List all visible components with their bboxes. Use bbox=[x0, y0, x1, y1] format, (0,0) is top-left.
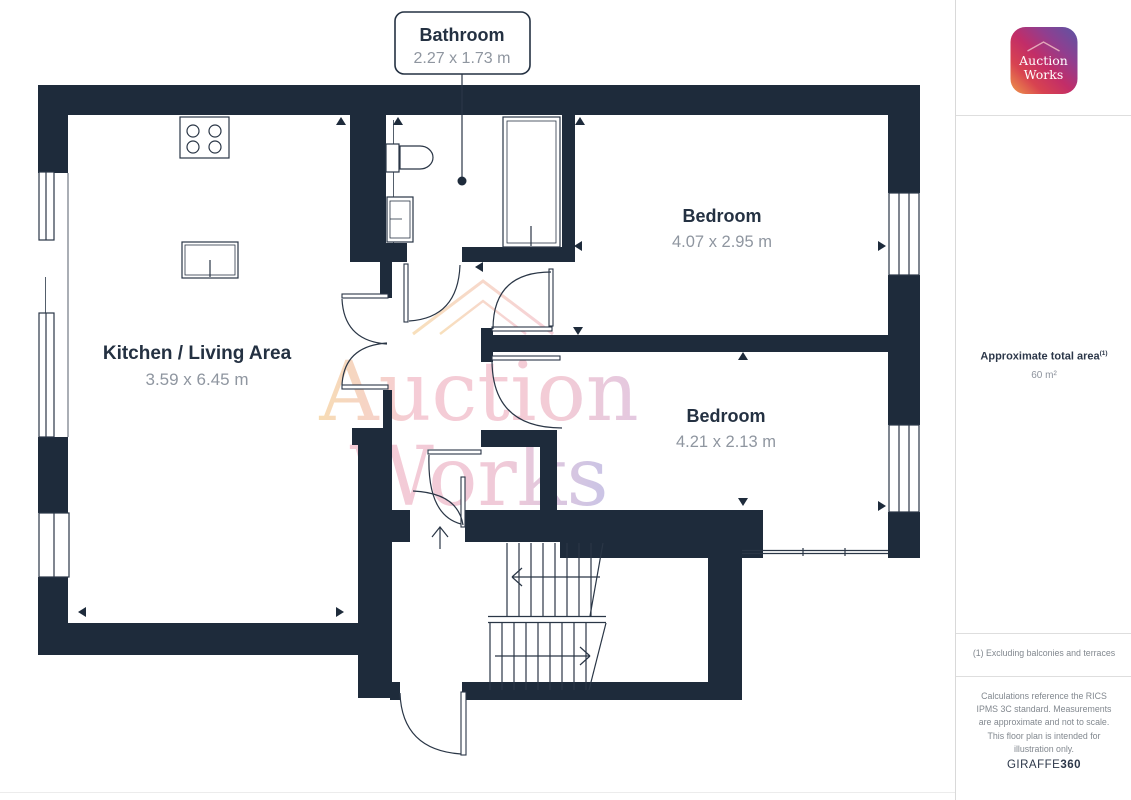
bathroom-door-leaf bbox=[404, 264, 408, 322]
sidebar-divider-footnote-top bbox=[956, 633, 1131, 634]
auction-works-logo: Auction Works bbox=[1010, 27, 1077, 94]
total-area-value: 60 m² bbox=[956, 370, 1131, 381]
floorplan-drawing: Auction Works bbox=[0, 0, 955, 800]
disclaimer-text: Calculations reference the RICS IPMS 3C … bbox=[970, 690, 1118, 756]
callout-dims: 2.27 x 1.73 m bbox=[414, 50, 511, 67]
entrance-door-leaf bbox=[461, 692, 466, 755]
toilet-icon bbox=[386, 144, 433, 172]
kitchen-door-leaf-top bbox=[342, 294, 388, 298]
info-sidebar: Auction Works Approximate total area(1) … bbox=[955, 0, 1131, 800]
up-arrow-icon bbox=[432, 527, 448, 549]
bedroom1-door-leaf bbox=[549, 269, 553, 326]
room-label-kitchen: Kitchen / Living Area bbox=[103, 343, 292, 364]
stair-arrow-lower-flight bbox=[495, 647, 590, 665]
stair-arrow-up-flight bbox=[512, 568, 600, 586]
giraffe360-brand: GIRAFFE360 bbox=[956, 759, 1131, 771]
room-dims-bedroom2: 4.21 x 2.13 m bbox=[676, 433, 776, 451]
watermark-line1: Auction bbox=[318, 345, 638, 440]
footnote-text: (1) Excluding balconies and terraces bbox=[956, 648, 1131, 658]
callout-title: Bathroom bbox=[420, 25, 505, 45]
brand-name: GIRAFFE bbox=[1007, 759, 1060, 771]
callout-anchor-dot bbox=[458, 177, 467, 186]
sidebar-divider-top bbox=[956, 115, 1131, 116]
kitchen-island-icon bbox=[182, 242, 238, 278]
bedroom2-door-leaf bbox=[492, 356, 560, 360]
sidebar-divider-footnote-bottom bbox=[956, 676, 1131, 677]
room-label-bedroom2: Bedroom bbox=[686, 406, 765, 426]
room-dims-kitchen: 3.59 x 6.45 m bbox=[145, 370, 248, 389]
logo-text-line2: Works bbox=[1019, 68, 1068, 82]
stove-icon bbox=[180, 117, 229, 158]
sink-icon bbox=[387, 197, 413, 242]
shower-icon bbox=[503, 117, 560, 247]
room-label-bedroom1: Bedroom bbox=[682, 206, 761, 226]
room-dims-bedroom1: 4.07 x 2.95 m bbox=[672, 233, 772, 251]
total-area-superscript: (1) bbox=[1100, 350, 1108, 357]
kitchen-door-leaf-bottom bbox=[342, 385, 388, 389]
logo-text-line1: Auction bbox=[1019, 54, 1068, 68]
logo-roof-icon bbox=[1023, 40, 1065, 53]
total-area-label: Approximate total area(1) bbox=[956, 350, 1131, 363]
floorplan-page: Auction Works bbox=[0, 0, 1131, 800]
hall-door-leaf bbox=[428, 450, 481, 454]
brand-suffix: 360 bbox=[1060, 759, 1081, 771]
total-area-block: Approximate total area(1) 60 m² bbox=[956, 350, 1131, 381]
